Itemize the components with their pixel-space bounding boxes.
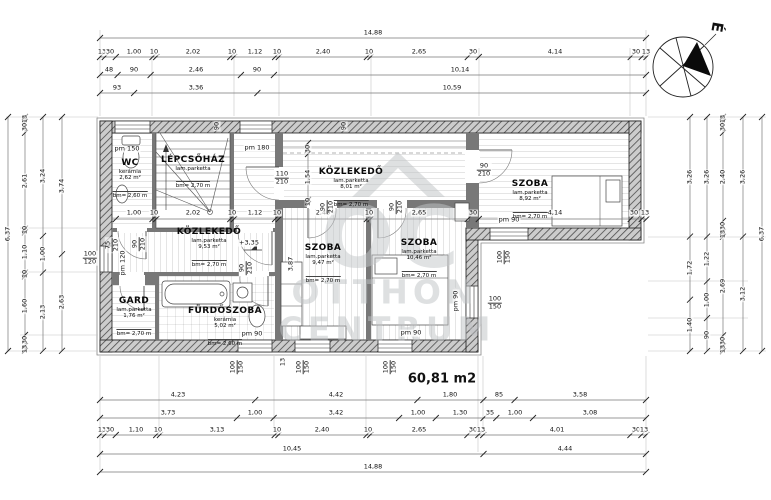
cabinet-szoba1	[300, 326, 346, 339]
duct-box	[455, 203, 469, 221]
bed-szoba-right	[552, 176, 622, 226]
bed-szoba2	[372, 255, 448, 325]
dimension-chains	[5, 30, 766, 475]
door-szoba1	[307, 199, 337, 238]
wc-sink	[116, 185, 128, 203]
compass-icon	[653, 34, 716, 97]
door-szoba2	[377, 199, 407, 238]
window-wc-top	[115, 121, 150, 133]
window-right-lower	[466, 286, 478, 318]
bathtub	[162, 281, 230, 307]
window-szoba2-bottom	[378, 340, 412, 352]
window-landing-top	[240, 121, 272, 133]
bath-sink	[249, 305, 265, 327]
washing-machine	[233, 283, 252, 302]
staircase	[156, 133, 230, 228]
door-szoba-right	[465, 150, 512, 183]
toilet	[122, 136, 140, 168]
door-landing-corridor	[246, 167, 284, 200]
window-szoba1-bottom	[295, 340, 330, 352]
plan-drawing	[0, 0, 771, 500]
floorplan-page: OC OTTHON CENTRUM 60,81 m2 É 14,8813301,…	[0, 0, 771, 500]
window-wing-bottom	[490, 228, 528, 240]
wardrobe-szoba1	[281, 262, 302, 326]
level-marker	[244, 244, 262, 250]
window-bath-bottom	[238, 340, 272, 352]
door-gard	[119, 275, 145, 310]
door-wc	[117, 227, 147, 259]
window-left	[100, 246, 112, 272]
